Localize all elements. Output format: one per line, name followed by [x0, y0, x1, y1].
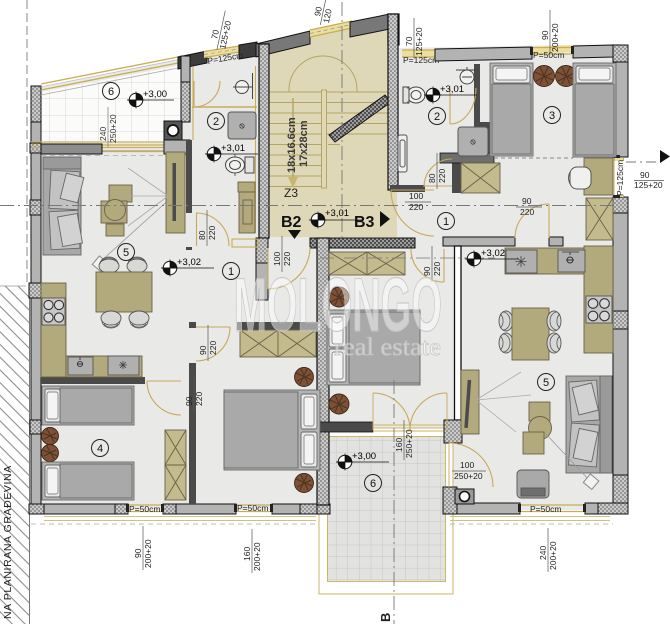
- svg-text:+3,01: +3,01: [325, 208, 349, 219]
- svg-text:90: 90: [133, 548, 143, 558]
- svg-text:100: 100: [460, 460, 474, 470]
- svg-text:90: 90: [198, 345, 208, 355]
- svg-text:+3,00: +3,00: [143, 89, 167, 100]
- svg-text:+3,01: +3,01: [440, 84, 464, 95]
- svg-text:NA PLANIRANA GRAĐEVINA: NA PLANIRANA GRAĐEVINA: [2, 465, 14, 619]
- svg-text:80: 80: [427, 173, 437, 183]
- svg-text:B: B: [378, 613, 393, 622]
- svg-text:+3,02: +3,02: [481, 248, 505, 259]
- svg-text:250+20: 250+20: [108, 114, 118, 143]
- svg-text:90: 90: [640, 170, 650, 180]
- svg-text:5: 5: [123, 247, 129, 259]
- svg-text:P=50cm: P=50cm: [237, 503, 268, 513]
- svg-text:220: 220: [520, 207, 534, 217]
- svg-text:160: 160: [242, 547, 252, 561]
- svg-text:+3,00: +3,00: [352, 451, 376, 462]
- svg-text:240: 240: [538, 546, 548, 560]
- svg-text:5: 5: [543, 377, 549, 389]
- svg-text:+3,02: +3,02: [177, 257, 201, 268]
- svg-text:P=125cm: P=125cm: [615, 160, 625, 196]
- svg-text:90: 90: [540, 30, 550, 40]
- svg-text:200+20: 200+20: [252, 542, 262, 571]
- svg-text:2: 2: [434, 111, 440, 123]
- svg-text:250+20: 250+20: [404, 429, 414, 458]
- svg-text:3: 3: [549, 110, 555, 122]
- svg-text:160: 160: [394, 438, 404, 452]
- svg-text:200+20: 200+20: [143, 539, 153, 568]
- svg-text:P=50cm: P=50cm: [530, 504, 561, 514]
- svg-text:P=50cm: P=50cm: [129, 504, 160, 514]
- svg-text:220: 220: [207, 226, 217, 240]
- svg-text:220: 220: [208, 341, 218, 355]
- svg-text:90: 90: [184, 396, 194, 406]
- svg-text:1: 1: [443, 216, 449, 228]
- svg-text:B3: B3: [354, 214, 375, 231]
- svg-text:real estate: real estate: [334, 334, 441, 361]
- svg-text:+3,01: +3,01: [221, 143, 245, 154]
- svg-text:100: 100: [409, 191, 423, 201]
- svg-text:90: 90: [522, 196, 532, 206]
- svg-text:250+20: 250+20: [454, 471, 483, 481]
- svg-text:17x28cm: 17x28cm: [298, 120, 310, 167]
- svg-text:6: 6: [108, 86, 114, 98]
- svg-text:125+20: 125+20: [634, 180, 663, 190]
- svg-text:18x16.6cm: 18x16.6cm: [286, 117, 298, 173]
- svg-text:6: 6: [370, 478, 376, 490]
- svg-text:220: 220: [409, 202, 423, 212]
- svg-text:200+20: 200+20: [550, 23, 560, 52]
- svg-text:B2: B2: [281, 214, 302, 231]
- svg-text:220: 220: [194, 392, 204, 406]
- svg-text:200+20: 200+20: [548, 541, 558, 570]
- svg-text:70: 70: [404, 36, 414, 46]
- svg-text:125+20: 125+20: [414, 27, 424, 56]
- svg-text:80: 80: [197, 230, 207, 240]
- svg-text:220: 220: [437, 169, 447, 183]
- svg-text:Z3: Z3: [284, 186, 298, 200]
- svg-text:2: 2: [213, 116, 219, 128]
- svg-text:240: 240: [98, 127, 108, 141]
- svg-text:4: 4: [97, 443, 103, 455]
